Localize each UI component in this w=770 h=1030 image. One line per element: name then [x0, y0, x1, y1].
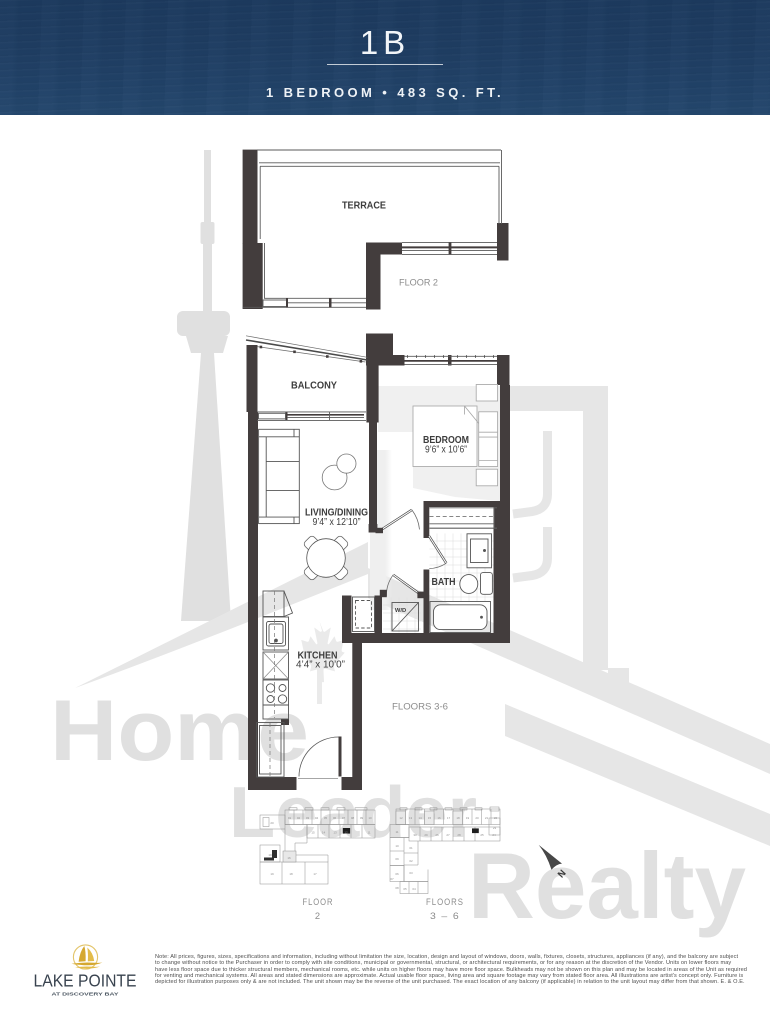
svg-text:04: 04 [315, 816, 319, 820]
svg-text:FLOORS: FLOORS [426, 897, 464, 907]
svg-text:02: 02 [409, 859, 413, 863]
svg-text:22: 22 [494, 816, 498, 820]
svg-text:12: 12 [399, 816, 403, 820]
svg-text:06: 06 [333, 816, 337, 820]
svg-text:11: 11 [395, 830, 398, 834]
svg-text:9’6” x 10’6”: 9’6” x 10’6” [425, 445, 467, 456]
svg-text:11: 11 [367, 831, 370, 835]
svg-text:FLOOR: FLOOR [303, 897, 334, 907]
svg-text:19: 19 [268, 853, 272, 857]
svg-text:27: 27 [446, 833, 450, 837]
svg-text:10: 10 [368, 816, 372, 820]
svg-text:26: 26 [435, 833, 439, 837]
svg-text:AT DISCOVERY BAY: AT DISCOVERY BAY [52, 992, 120, 997]
svg-text:18: 18 [456, 816, 460, 820]
svg-text:19: 19 [270, 872, 274, 876]
svg-text:02: 02 [297, 816, 301, 820]
svg-text:09: 09 [360, 816, 364, 820]
svg-text:17: 17 [447, 816, 451, 820]
svg-text:BATH: BATH [432, 577, 456, 588]
svg-text:10: 10 [395, 844, 399, 848]
svg-text:15: 15 [311, 831, 315, 835]
svg-text:15: 15 [428, 816, 432, 820]
svg-text:21: 21 [485, 816, 489, 820]
svg-text:9’4” x 12’10”: 9’4” x 12’10” [313, 517, 361, 528]
svg-text:07: 07 [342, 816, 346, 820]
svg-text:16: 16 [437, 816, 441, 820]
svg-text:13: 13 [409, 816, 413, 820]
svg-text:FLOORS 3-6: FLOORS 3-6 [392, 702, 448, 712]
svg-text:05: 05 [324, 816, 328, 820]
svg-text:07: 07 [390, 877, 394, 881]
svg-text:16: 16 [287, 856, 291, 860]
svg-text:05: 05 [403, 887, 407, 891]
svg-text:06: 06 [395, 872, 399, 876]
svg-text:14: 14 [418, 816, 422, 820]
svg-text:23: 23 [493, 826, 497, 830]
svg-text:01: 01 [288, 816, 292, 820]
svg-text:24: 24 [492, 833, 496, 837]
svg-text:2: 2 [315, 911, 321, 921]
svg-text:BALCONY: BALCONY [291, 380, 337, 391]
svg-text:3 – 6: 3 – 6 [430, 911, 460, 921]
svg-text:03: 03 [409, 871, 413, 875]
svg-text:Realty: Realty [468, 833, 746, 938]
svg-text:12: 12 [344, 831, 348, 835]
svg-text:29: 29 [424, 833, 428, 837]
svg-text:13: 13 [333, 831, 337, 835]
svg-text:03: 03 [306, 816, 310, 820]
svg-text:20: 20 [270, 821, 274, 825]
svg-text:30: 30 [413, 833, 417, 837]
svg-text:14: 14 [322, 831, 326, 835]
svg-text:TERRACE: TERRACE [342, 201, 386, 212]
svg-text:19: 19 [466, 816, 470, 820]
svg-text:FLOOR 2: FLOOR 2 [399, 278, 438, 288]
svg-text:W/D: W/D [395, 608, 406, 614]
svg-text:09: 09 [395, 857, 399, 861]
svg-text:17: 17 [313, 872, 317, 876]
svg-text:4’4” x 10’0”: 4’4” x 10’0” [296, 660, 345, 671]
svg-text:08: 08 [395, 886, 399, 890]
svg-text:08: 08 [351, 816, 355, 820]
svg-text:LAKE POINTE: LAKE POINTE [34, 970, 137, 990]
svg-text:18: 18 [289, 872, 293, 876]
svg-text:04: 04 [412, 887, 416, 891]
svg-text:28: 28 [457, 833, 461, 837]
svg-text:25: 25 [480, 833, 484, 837]
svg-text:01: 01 [409, 846, 413, 850]
svg-text:20: 20 [475, 816, 479, 820]
